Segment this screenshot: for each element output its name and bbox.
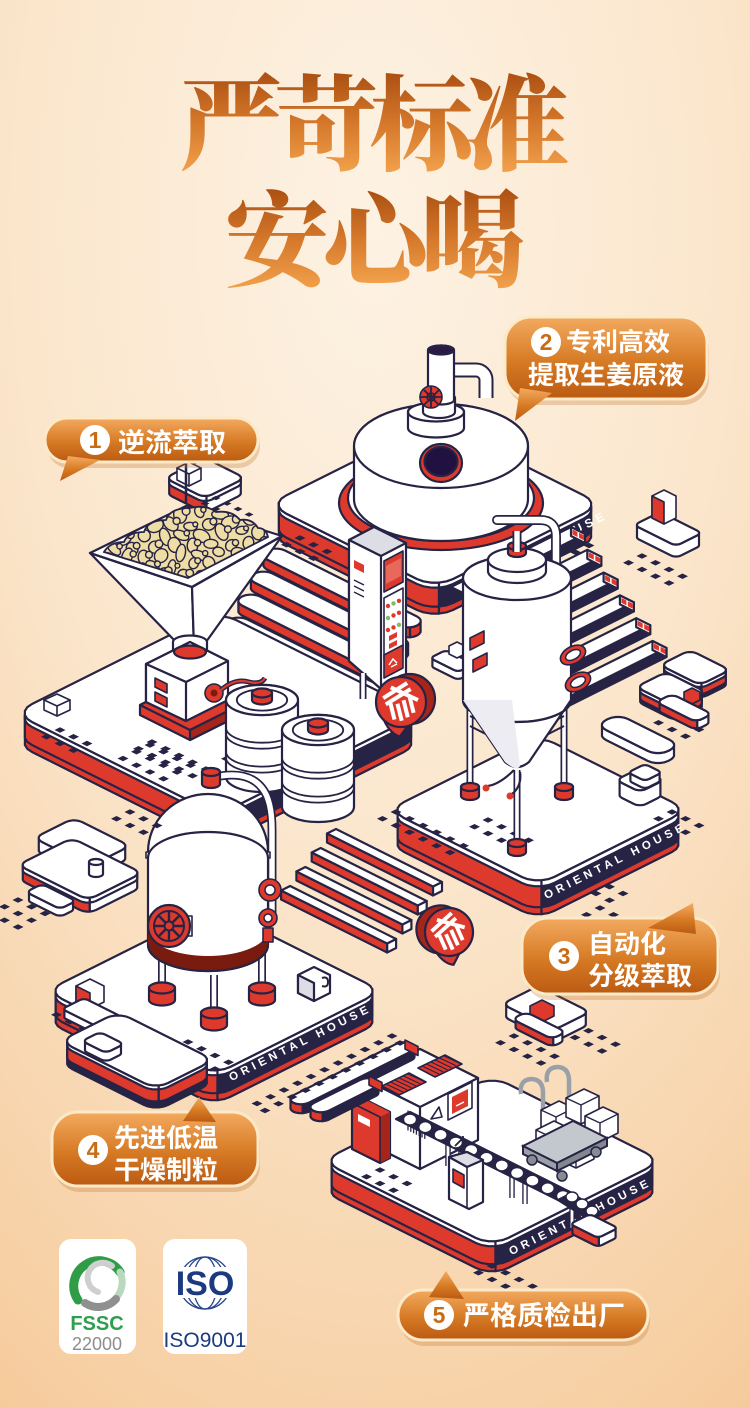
svg-text:3: 3 <box>558 943 571 969</box>
svg-text:ISO: ISO <box>176 1265 235 1303</box>
svg-text:ISO9001: ISO9001 <box>164 1329 247 1352</box>
svg-text:4: 4 <box>87 1137 100 1163</box>
svg-text:1: 1 <box>89 427 102 453</box>
svg-text:5: 5 <box>433 1302 446 1328</box>
svg-text:22000: 22000 <box>72 1334 122 1354</box>
svg-text:FSSC: FSSC <box>70 1313 123 1335</box>
svg-text:2: 2 <box>540 329 553 355</box>
